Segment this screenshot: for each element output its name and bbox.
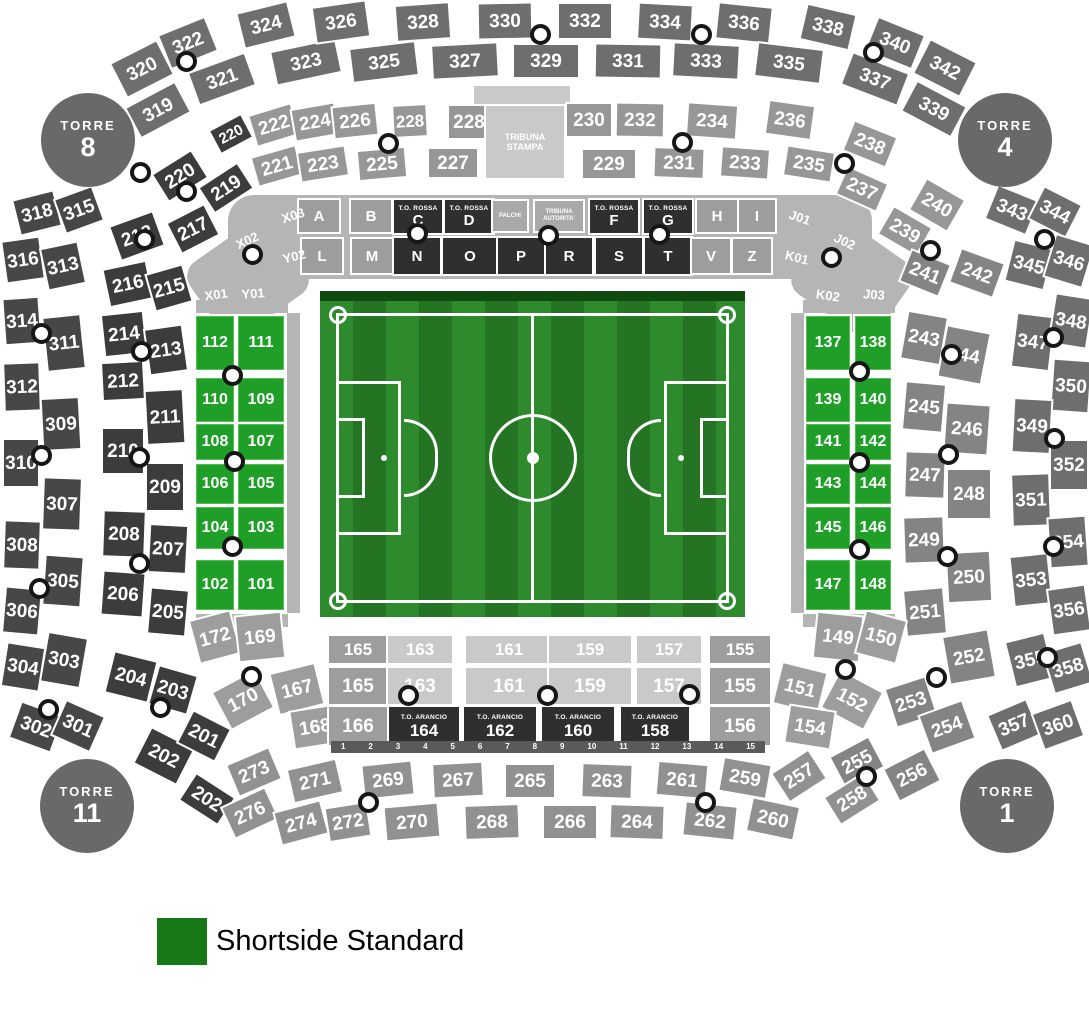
gate-marker-icon: [941, 344, 962, 365]
section-335[interactable]: 335: [755, 43, 822, 83]
section-166[interactable]: 166: [329, 707, 387, 745]
gate-marker-icon: [176, 181, 197, 202]
tower-8: TORRE8: [41, 93, 135, 187]
section-267[interactable]: 267: [433, 763, 483, 797]
row-number: 8: [533, 743, 537, 751]
pitch-corner-arc: [718, 592, 736, 610]
tower-4: TORRE4: [958, 93, 1052, 187]
section-f[interactable]: T.O. ROSSAF: [590, 200, 638, 233]
section-137[interactable]: 137: [806, 316, 850, 370]
gate-marker-icon: [538, 225, 559, 246]
gate-marker-icon: [856, 766, 877, 787]
section-248[interactable]: 248: [948, 470, 990, 518]
section-307[interactable]: 307: [43, 478, 81, 529]
gate-marker-icon: [1043, 536, 1064, 557]
gate-marker-icon: [29, 578, 50, 599]
section-161[interactable]: 161: [466, 636, 552, 663]
section-101[interactable]: 101: [238, 560, 284, 610]
gate-marker-icon: [378, 133, 399, 154]
gate-marker-icon: [679, 684, 700, 705]
section-309[interactable]: 309: [42, 398, 81, 450]
gate-marker-icon: [358, 792, 379, 813]
row-number: 12: [651, 743, 660, 751]
gate-marker-icon: [1037, 647, 1058, 668]
section-323[interactable]: 323: [271, 40, 340, 85]
section-271[interactable]: 271: [288, 760, 342, 802]
section-158[interactable]: T.O. ARANCIO158: [621, 707, 689, 745]
stadium-seating-map: 3203223193213243233263253283273303293323…: [0, 0, 1089, 1032]
section-356[interactable]: 356: [1048, 586, 1089, 635]
section-209[interactable]: 209: [147, 464, 183, 510]
pitch-penalty-spot-right: [678, 455, 684, 461]
gate-marker-icon: [1043, 327, 1064, 348]
section-s[interactable]: S: [596, 238, 642, 274]
gate-marker-icon: [176, 51, 197, 72]
pitch-penalty-arc-right: [627, 419, 661, 497]
section-151[interactable]: 151: [774, 663, 826, 712]
section-149[interactable]: 149: [814, 613, 862, 661]
section-i[interactable]: I: [739, 200, 775, 232]
gate-marker-icon: [134, 229, 155, 250]
section-333[interactable]: 333: [673, 43, 739, 78]
gate-marker-icon: [31, 445, 52, 466]
section-236[interactable]: 236: [766, 101, 814, 139]
gate-marker-icon: [31, 323, 52, 344]
gate-marker-icon: [821, 247, 842, 268]
section-226[interactable]: 226: [333, 104, 378, 138]
section-145[interactable]: 145: [806, 507, 850, 549]
gate-marker-icon: [849, 361, 870, 382]
gate-marker-icon: [241, 666, 262, 687]
section-318[interactable]: 318: [13, 192, 60, 235]
gate-marker-icon: [222, 536, 243, 557]
section-336[interactable]: 336: [716, 3, 771, 42]
row-number: 1: [341, 743, 345, 751]
legend: Shortside Standard: [157, 918, 464, 965]
gate-marker-icon: [672, 132, 693, 153]
gate-marker-icon: [849, 452, 870, 473]
section-308[interactable]: 308: [4, 521, 40, 568]
section-221[interactable]: 221: [252, 146, 302, 185]
pitch-outline: [336, 313, 729, 603]
section-251[interactable]: 251: [904, 588, 946, 635]
row-number: 3: [396, 743, 400, 751]
walkway-band: [287, 313, 300, 613]
section-224[interactable]: 224: [292, 104, 339, 141]
row-number: 11: [619, 743, 627, 751]
section-327[interactable]: 327: [432, 43, 498, 78]
section-215[interactable]: 215: [147, 266, 192, 311]
section-310[interactable]: 310: [4, 440, 38, 486]
section-159[interactable]: 159: [549, 636, 631, 663]
section-h[interactable]: H: [697, 200, 737, 232]
section-102[interactable]: 102: [196, 560, 234, 610]
section-329[interactable]: 329: [514, 45, 578, 77]
section-155[interactable]: 155: [710, 636, 770, 663]
section-321[interactable]: 321: [189, 54, 254, 104]
section-163[interactable]: 163: [388, 636, 452, 663]
section-162[interactable]: T.O. ARANCIO162: [464, 707, 536, 745]
section-313[interactable]: 313: [41, 243, 85, 290]
section-326[interactable]: 326: [313, 2, 369, 43]
pitch-penalty-spot-left: [381, 455, 387, 461]
section-m[interactable]: M: [352, 239, 392, 273]
section-220[interactable]: 220: [210, 115, 251, 152]
section-265[interactable]: 265: [506, 765, 554, 797]
row-number: 10: [587, 743, 596, 751]
gate-marker-icon: [38, 699, 59, 720]
section-y01[interactable]: Y01: [232, 283, 273, 304]
section-105[interactable]: 105: [238, 464, 284, 504]
pitch-goal-area-right: [700, 418, 726, 498]
section-212[interactable]: 212: [102, 362, 144, 400]
section-169[interactable]: 169: [236, 613, 284, 661]
gate-marker-icon: [649, 224, 670, 245]
section-350[interactable]: 350: [1051, 360, 1089, 412]
section-360[interactable]: 360: [1033, 701, 1083, 749]
section-p[interactable]: P: [498, 238, 544, 274]
gate-marker-icon: [398, 685, 419, 706]
section-156[interactable]: 156: [710, 707, 770, 745]
section-232[interactable]: 232: [617, 104, 664, 137]
pitch-top-border: [320, 291, 745, 301]
section-217[interactable]: 217: [168, 206, 218, 253]
section-164[interactable]: T.O. ARANCIO164: [389, 707, 459, 745]
section-157[interactable]: 157: [637, 636, 701, 663]
section-103[interactable]: 103: [238, 507, 284, 549]
legend-label: Shortside Standard: [216, 925, 464, 958]
gate-marker-icon: [129, 447, 150, 468]
section-256[interactable]: 256: [885, 750, 940, 800]
section-242[interactable]: 242: [951, 250, 1004, 297]
section-357[interactable]: 357: [989, 701, 1040, 750]
section-206[interactable]: 206: [102, 572, 145, 617]
section-205[interactable]: 205: [148, 589, 188, 636]
section-231[interactable]: 231: [655, 148, 704, 178]
section-330[interactable]: 330: [479, 4, 532, 39]
gate-marker-icon: [530, 24, 551, 45]
section-107[interactable]: 107: [238, 424, 284, 460]
section-305[interactable]: 305: [43, 556, 82, 606]
section-334[interactable]: 334: [638, 4, 692, 41]
section-273[interactable]: 273: [227, 749, 280, 796]
section-148[interactable]: 148: [855, 560, 891, 610]
row-number: 13: [682, 743, 691, 751]
section-167[interactable]: 167: [271, 664, 323, 713]
section-274[interactable]: 274: [275, 802, 328, 845]
row-number: 5: [451, 743, 455, 751]
row-number: 9: [560, 743, 564, 751]
section-228[interactable]: 228: [393, 105, 427, 137]
section-315[interactable]: 315: [55, 188, 102, 233]
section-316[interactable]: 316: [2, 238, 43, 283]
tower-11: TORRE11: [40, 759, 134, 853]
section-j03[interactable]: J03: [853, 284, 894, 305]
section-palchi[interactable]: PALCHI: [493, 201, 527, 231]
gate-marker-icon: [129, 553, 150, 574]
legend-swatch-shortside-standard: [157, 918, 207, 965]
section-260[interactable]: 260: [747, 799, 799, 840]
gate-marker-icon: [222, 365, 243, 386]
section-311[interactable]: 311: [43, 315, 84, 370]
section-d[interactable]: T.O. ROSSAD: [445, 200, 493, 233]
section-227[interactable]: 227: [429, 149, 477, 177]
row-number: 7: [505, 743, 509, 751]
gate-marker-icon: [863, 42, 884, 63]
row-number: 2: [368, 743, 372, 751]
section-270[interactable]: 270: [385, 804, 440, 840]
section-259[interactable]: 259: [720, 758, 771, 798]
section-225[interactable]: 225: [358, 148, 406, 180]
section-208[interactable]: 208: [103, 511, 145, 556]
gate-marker-icon: [938, 444, 959, 465]
section-v[interactable]: V: [692, 239, 730, 273]
section-165[interactable]: 165: [329, 668, 387, 704]
section-112[interactable]: 112: [196, 316, 234, 370]
gate-marker-icon: [691, 24, 712, 45]
section-159[interactable]: 159: [549, 668, 631, 704]
section-140[interactable]: 140: [855, 378, 891, 422]
gate-marker-icon: [131, 341, 152, 362]
section-234[interactable]: 234: [687, 103, 737, 138]
section-312[interactable]: 312: [4, 363, 40, 410]
section-252[interactable]: 252: [943, 631, 994, 684]
section-147[interactable]: 147: [806, 560, 850, 610]
walkway-band: [791, 313, 804, 613]
gate-marker-icon: [920, 240, 941, 261]
section-207[interactable]: 207: [149, 525, 187, 573]
section-141[interactable]: 141: [806, 424, 850, 460]
gate-marker-icon: [849, 539, 870, 560]
row-number: 14: [714, 743, 723, 751]
section-338[interactable]: 338: [801, 5, 855, 49]
section-325[interactable]: 325: [350, 42, 417, 82]
section-143[interactable]: 143: [806, 464, 850, 504]
section-155[interactable]: 155: [710, 668, 770, 704]
section-111[interactable]: 111: [238, 316, 284, 370]
pitch-center-spot: [527, 452, 539, 464]
pitch-corner-arc: [329, 306, 347, 324]
section-b[interactable]: B: [351, 200, 391, 232]
section-235[interactable]: 235: [784, 147, 834, 182]
gate-marker-icon: [407, 223, 428, 244]
section-109[interactable]: 109: [238, 378, 284, 422]
section-229[interactable]: 229: [583, 150, 635, 178]
walkway-band: [474, 86, 570, 108]
section-t[interactable]: T: [645, 238, 691, 274]
gate-marker-icon: [130, 162, 151, 183]
section-243[interactable]: 243: [901, 312, 946, 364]
section-304[interactable]: 304: [2, 643, 44, 690]
section-331[interactable]: 331: [596, 44, 661, 77]
gate-marker-icon: [1034, 229, 1055, 250]
tribuna-stampa[interactable]: TRIBUNASTAMPA: [486, 106, 564, 178]
row-number: 6: [478, 743, 482, 751]
section-204[interactable]: 204: [106, 653, 156, 702]
section-332[interactable]: 332: [559, 4, 611, 38]
gate-marker-icon: [537, 685, 558, 706]
pitch-goal-area-left: [339, 418, 365, 498]
gate-marker-icon: [926, 667, 947, 688]
section-165[interactable]: 165: [329, 636, 387, 663]
gate-marker-icon: [937, 546, 958, 567]
gate-marker-icon: [695, 792, 716, 813]
gate-marker-icon: [224, 451, 245, 472]
section-264[interactable]: 264: [610, 805, 663, 839]
section-301[interactable]: 301: [52, 701, 103, 750]
pitch-corner-arc: [329, 592, 347, 610]
section-344[interactable]: 344: [1029, 188, 1080, 236]
section-324[interactable]: 324: [238, 2, 295, 47]
section-303[interactable]: 303: [41, 633, 87, 687]
section-351[interactable]: 351: [1012, 474, 1050, 525]
section-139[interactable]: 139: [806, 378, 850, 422]
row-number: 15: [746, 743, 755, 751]
section-z[interactable]: Z: [733, 239, 771, 273]
row-number: 4: [423, 743, 427, 751]
section-233[interactable]: 233: [721, 147, 769, 178]
section-228[interactable]: 228: [449, 106, 489, 138]
section-353[interactable]: 353: [1011, 554, 1052, 606]
section-266[interactable]: 266: [544, 806, 596, 838]
section-154[interactable]: 154: [785, 706, 834, 748]
section-343[interactable]: 343: [986, 186, 1038, 233]
tower-1: TORRE1: [960, 759, 1054, 853]
section-268[interactable]: 268: [465, 805, 518, 839]
gate-marker-icon: [834, 153, 855, 174]
football-pitch: [320, 291, 745, 617]
section-216[interactable]: 216: [104, 262, 153, 306]
gate-marker-icon: [835, 659, 856, 680]
section-328[interactable]: 328: [396, 3, 450, 41]
row-number-strip: 123456789101112131415: [331, 741, 765, 753]
section-257[interactable]: 257: [773, 751, 826, 801]
section-230[interactable]: 230: [567, 104, 611, 136]
section-160[interactable]: T.O. ARANCIO160: [542, 707, 614, 745]
pitch-penalty-arc-left: [404, 419, 438, 497]
section-223[interactable]: 223: [298, 147, 348, 182]
section-263[interactable]: 263: [582, 764, 631, 798]
section-245[interactable]: 245: [903, 382, 945, 431]
gate-marker-icon: [150, 697, 171, 718]
gate-marker-icon: [1044, 428, 1065, 449]
pitch-corner-arc: [718, 306, 736, 324]
gate-marker-icon: [242, 244, 263, 265]
section-211[interactable]: 211: [146, 390, 185, 444]
section-o[interactable]: O: [443, 238, 497, 274]
